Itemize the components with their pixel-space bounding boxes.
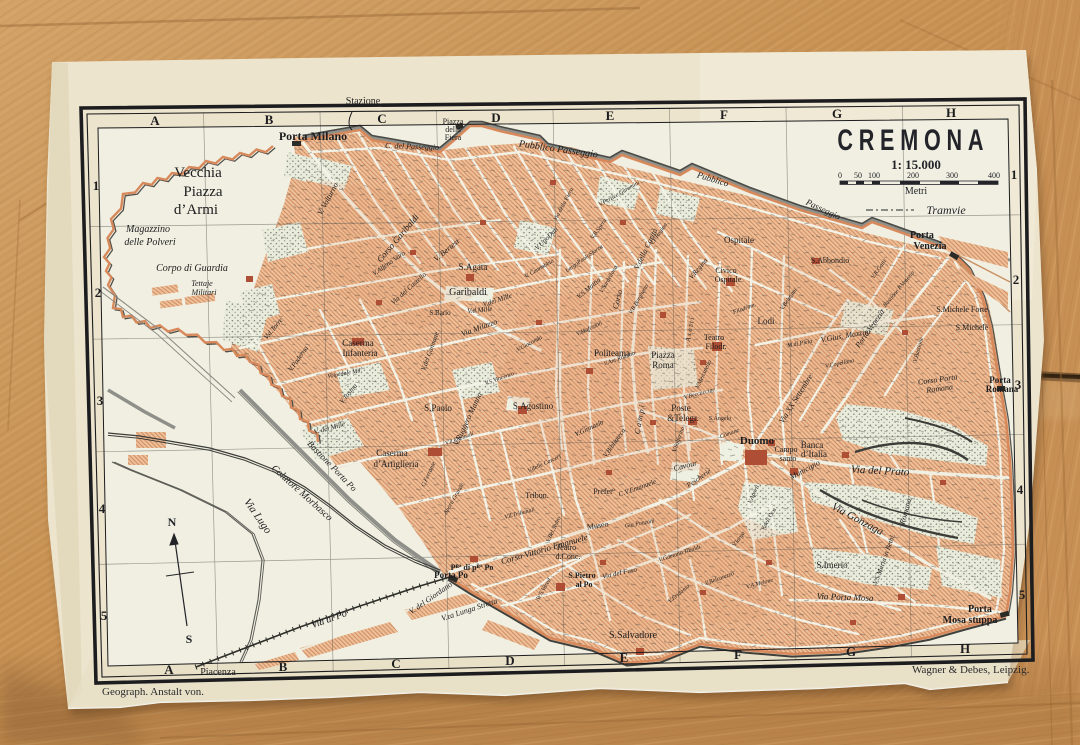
svg-text:Corpo di Guardia: Corpo di Guardia (156, 263, 228, 274)
svg-text:Teatro: Teatro (704, 333, 724, 342)
svg-text:300: 300 (946, 171, 958, 180)
svg-text:S.Bario: S.Bario (429, 309, 451, 317)
svg-text:&Telegr.: &Telegr. (667, 413, 699, 423)
svg-text:50: 50 (854, 171, 862, 180)
svg-text:Caserma: Caserma (342, 338, 374, 348)
svg-text:2: 2 (1013, 272, 1020, 287)
svg-text:Via Porta Mosa: Via Porta Mosa (817, 591, 875, 603)
svg-text:1: 15.000: 1: 15.000 (891, 157, 941, 172)
svg-text:Piacenza: Piacenza (200, 667, 236, 678)
svg-text:Fiera: Fiera (445, 133, 462, 142)
svg-text:d.Conc.: d.Conc. (556, 552, 581, 561)
svg-text:4: 4 (99, 501, 106, 516)
svg-text:Piazza: Piazza (183, 184, 222, 200)
svg-text:santo: santo (780, 454, 797, 463)
svg-text:4: 4 (1017, 482, 1024, 497)
svg-text:S.Abbondio: S.Abbondio (811, 256, 849, 265)
svg-text:Roma: Roma (652, 360, 674, 370)
svg-text:Piazza: Piazza (651, 350, 674, 360)
svg-text:C: C (391, 656, 400, 671)
svg-text:Tettaje: Tettaje (191, 279, 213, 288)
svg-text:S.Michele: S.Michele (956, 323, 989, 332)
svg-text:Magazzino: Magazzino (125, 224, 170, 235)
svg-text:G: G (832, 106, 842, 121)
svg-text:S.Salvadore: S.Salvadore (609, 630, 658, 641)
svg-text:Porta: Porta (968, 604, 992, 615)
svg-text:Ospitale: Ospitale (724, 235, 754, 245)
svg-text:Militari: Militari (191, 288, 217, 297)
svg-text:3: 3 (97, 393, 104, 408)
svg-text:Lodi: Lodi (758, 316, 775, 326)
svg-text:H: H (960, 641, 970, 656)
svg-text:5: 5 (101, 608, 108, 623)
svg-text:Mosa stuppa: Mosa stuppa (943, 615, 998, 626)
svg-text:2: 2 (95, 285, 102, 300)
svg-text:C: C (377, 111, 386, 126)
svg-text:Metri: Metri (905, 186, 927, 197)
svg-text:Geograph. Anstalt von.: Geograph. Anstalt von. (102, 686, 204, 698)
svg-text:Tribun.: Tribun. (525, 491, 549, 500)
svg-text:Pᴿª di pᴿª Po: Pᴿª di pᴿª Po (451, 563, 494, 572)
svg-text:D: D (491, 110, 500, 125)
svg-text:100: 100 (868, 171, 880, 180)
svg-text:5: 5 (1019, 587, 1026, 602)
svg-text:400: 400 (988, 171, 1000, 180)
svg-text:Infanteria: Infanteria (343, 348, 378, 358)
svg-text:E: E (606, 108, 615, 123)
svg-text:S.Angelo: S.Angelo (709, 416, 732, 422)
svg-text:S.Michele Forte: S.Michele Forte (936, 305, 988, 314)
svg-text:Campo: Campo (774, 445, 797, 454)
svg-text:F: F (720, 107, 728, 122)
svg-text:B: B (265, 112, 274, 127)
svg-text:1: 1 (1011, 167, 1018, 182)
svg-text:Wagner & Debes, Leipzig.: Wagner & Debes, Leipzig. (912, 664, 1030, 676)
svg-text:Poste: Poste (671, 403, 691, 413)
svg-text:Venezia: Venezia (914, 241, 947, 252)
svg-text:Romana: Romana (986, 384, 1019, 394)
svg-text:Civico: Civico (715, 266, 736, 275)
svg-text:H: H (946, 105, 956, 120)
svg-text:Stazione: Stazione (346, 96, 381, 107)
svg-text:CREMONA: CREMONA (837, 122, 989, 156)
svg-text:Teatro: Teatro (556, 543, 576, 552)
svg-text:0: 0 (838, 171, 842, 180)
svg-text:d’Italia: d’Italia (801, 449, 827, 459)
svg-text:D: D (505, 653, 514, 668)
svg-text:Filodr.: Filodr. (705, 342, 726, 351)
svg-text:d’Artiglieria: d’Artiglieria (374, 459, 419, 469)
svg-text:Caserma: Caserma (376, 448, 408, 458)
svg-text:S.Agostino: S.Agostino (513, 401, 554, 411)
svg-text:E: E (620, 650, 629, 665)
svg-text:Porta Milano: Porta Milano (279, 129, 347, 143)
svg-text:delle Polveri: delle Polveri (124, 237, 176, 248)
svg-text:Porta: Porta (910, 230, 934, 241)
svg-text:200: 200 (907, 171, 919, 180)
svg-text:B: B (279, 659, 288, 674)
svg-text:Vecchia: Vecchia (174, 165, 222, 181)
svg-text:Tramvie: Tramvie (926, 203, 966, 217)
svg-text:S.Agata: S.Agata (459, 262, 488, 272)
svg-text:al Po: al Po (575, 580, 592, 589)
svg-text:Ospitale: Ospitale (715, 275, 742, 284)
svg-text:G: G (846, 644, 856, 659)
svg-text:d’Armi: d’Armi (174, 202, 218, 218)
svg-text:1: 1 (93, 178, 100, 193)
svg-text:N: N (168, 515, 177, 529)
svg-text:F: F (734, 647, 742, 662)
svg-text:A: A (150, 113, 160, 128)
svg-text:A: A (164, 662, 174, 677)
svg-text:S.Paolo: S.Paolo (424, 403, 452, 413)
svg-text:S.Pietro: S.Pietro (568, 571, 595, 580)
svg-text:Garibaldi: Garibaldi (449, 287, 487, 298)
svg-text:Duomo: Duomo (740, 435, 775, 447)
svg-text:C. del Passeggio: C. del Passeggio (385, 141, 439, 152)
svg-text:S: S (186, 632, 193, 646)
svg-text:S.Imerio: S.Imerio (816, 560, 848, 570)
svg-text:Prefetº: Prefetº (593, 487, 615, 496)
